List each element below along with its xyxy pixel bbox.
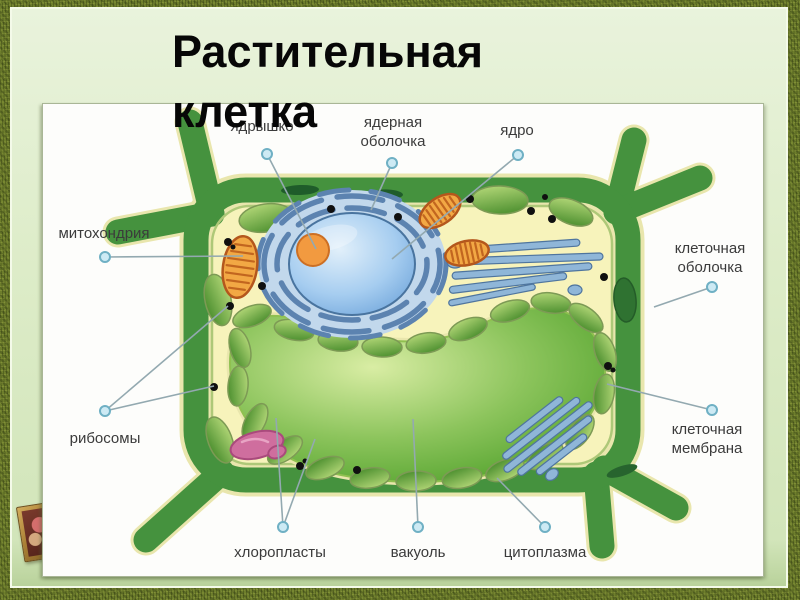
slide-stage: ядрышко ядерная оболочка ядро митохондри… (0, 0, 800, 600)
label-ribosomes: рибосомы (45, 429, 165, 448)
label-nucleus: ядро (487, 121, 547, 140)
label-cell-wall: клеточная оболочка (662, 239, 758, 277)
label-mitochondria: митохондрия (34, 224, 174, 243)
nucleus (289, 213, 415, 315)
label-cytoplasm: цитоплазма (490, 543, 600, 562)
nucleolus (297, 234, 329, 266)
plant-cell-diagram (42, 103, 764, 577)
label-cell-membrane: клеточная мембрана (658, 420, 756, 458)
label-chloroplasts: хлоропласты (215, 543, 345, 562)
slide-title-line1: Растительная (172, 22, 483, 82)
slide-title-line2: клетка (172, 82, 483, 142)
label-vacuole: вакуоль (368, 543, 468, 562)
slide-title: Растительная клетка (172, 22, 483, 142)
